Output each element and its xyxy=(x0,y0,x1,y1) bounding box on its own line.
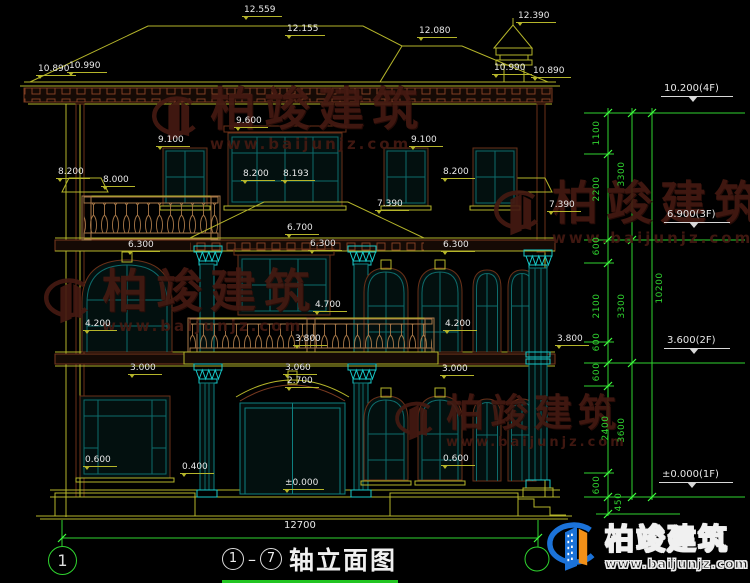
logo-company-name: 柏竣建筑 xyxy=(605,525,749,554)
main-roof xyxy=(20,26,560,104)
axis-circle-start: 1 xyxy=(222,548,244,570)
baijun-logo-icon xyxy=(541,518,601,578)
axis-circle-end: 7 xyxy=(260,548,282,570)
arched-window xyxy=(364,388,408,480)
dash: – xyxy=(248,550,256,569)
center-window xyxy=(224,126,346,210)
first-floor xyxy=(76,364,536,497)
entry-door xyxy=(236,371,349,497)
baijun-logo: 柏竣建筑 www.baijunjz.com xyxy=(541,513,750,583)
drawing-title: 轴立面图 xyxy=(289,541,397,577)
arched-window xyxy=(473,399,501,481)
window xyxy=(470,148,520,210)
balcony-balustrade xyxy=(184,318,438,364)
fluted-column xyxy=(197,383,217,497)
axis-bubble-1: 1 xyxy=(48,546,77,575)
column-capital xyxy=(194,364,222,383)
cad-elevation-canvas: 柏竣建筑 www.baijunjz.com 柏竣建筑 www.baijunjz.… xyxy=(0,0,750,583)
center-window xyxy=(234,249,334,315)
window xyxy=(160,148,210,210)
logo-url: www.baijunjz.com xyxy=(605,556,749,571)
elevation-drawing xyxy=(0,0,750,583)
arched-window xyxy=(82,252,172,352)
second-floor xyxy=(82,249,536,364)
window xyxy=(381,148,431,210)
drawing-title-block: 1–7 轴立面图 xyxy=(222,541,398,583)
arched-window xyxy=(418,388,462,480)
window xyxy=(76,396,174,482)
arched-window xyxy=(473,270,501,352)
porch-roof xyxy=(190,202,424,238)
column-capital xyxy=(348,364,376,383)
